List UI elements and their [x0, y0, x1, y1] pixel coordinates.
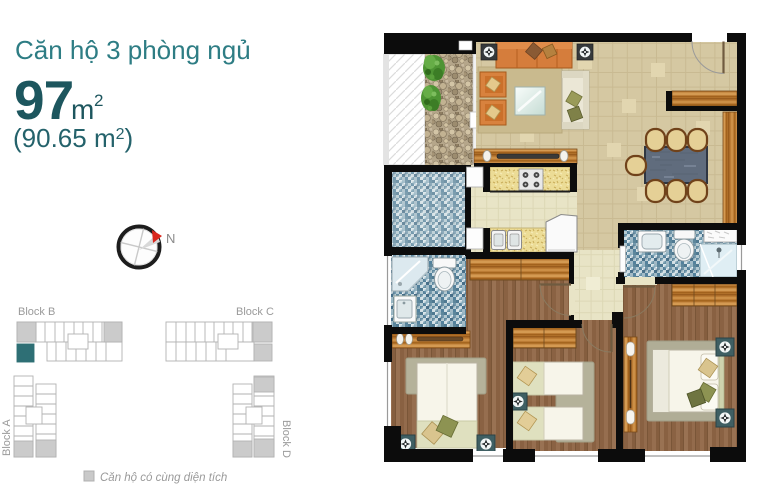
- svg-text:Block C: Block C: [236, 306, 274, 318]
- svg-text:Block D: Block D: [280, 420, 292, 458]
- svg-text:Block B: Block B: [18, 306, 55, 318]
- svg-text:N: N: [166, 231, 175, 246]
- svg-text:Căn hộ có cùng diện tích: Căn hộ có cùng diện tích: [100, 472, 227, 484]
- svg-text:2: 2: [94, 91, 103, 110]
- svg-text:Căn hộ 3 phòng ngủ: Căn hộ 3 phòng ngủ: [15, 35, 251, 65]
- svg-text:(90.65 m2): (90.65 m2): [13, 123, 133, 153]
- svg-text:m: m: [71, 94, 94, 125]
- svg-text:Block A: Block A: [1, 419, 13, 456]
- svg-text:97: 97: [14, 69, 73, 131]
